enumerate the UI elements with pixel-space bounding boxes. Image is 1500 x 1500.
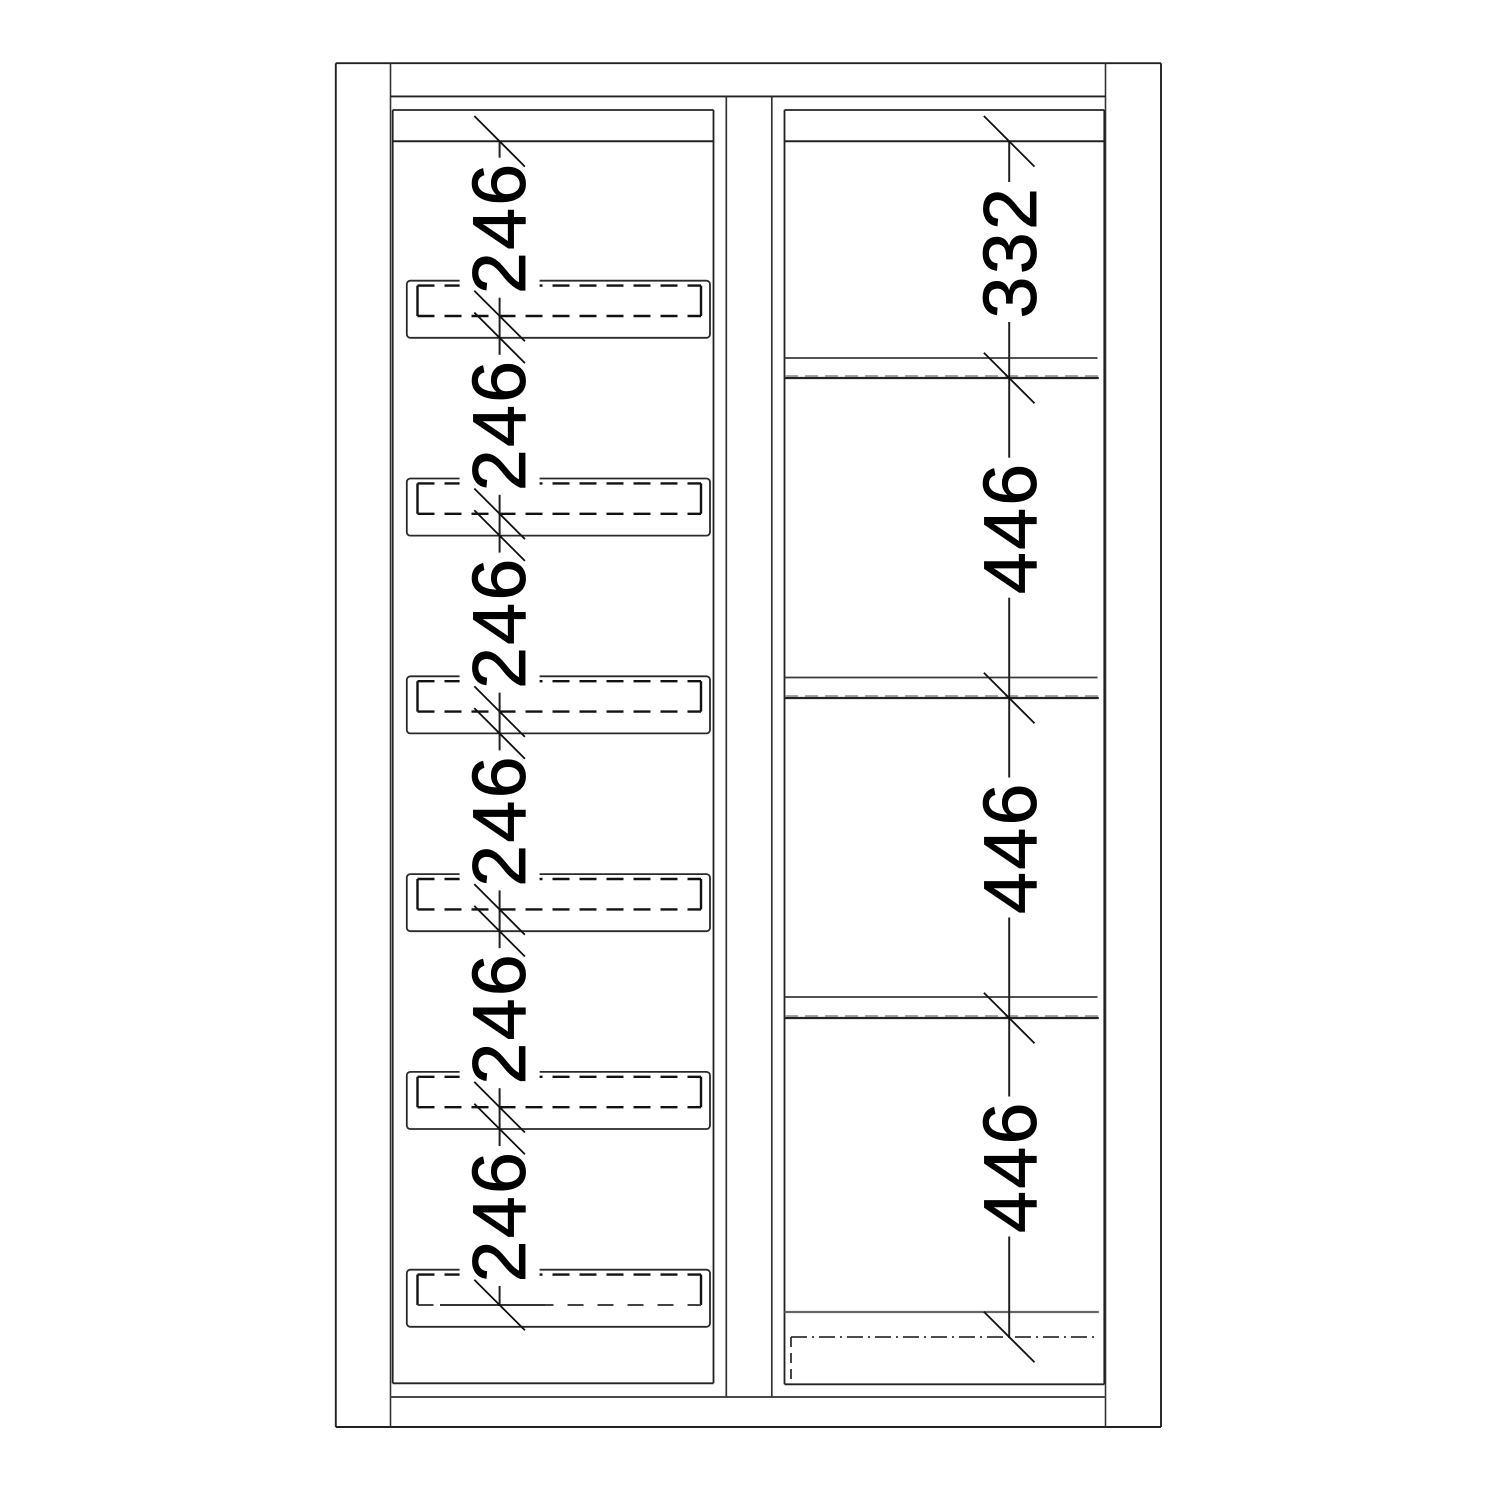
svg-text:246: 246 — [457, 952, 541, 1085]
svg-text:446: 446 — [968, 781, 1052, 914]
svg-text:446: 446 — [968, 461, 1052, 594]
svg-text:332: 332 — [968, 186, 1052, 319]
svg-text:446: 446 — [968, 1100, 1052, 1233]
svg-text:246: 246 — [457, 161, 541, 294]
svg-text:246: 246 — [457, 358, 541, 491]
svg-text:246: 246 — [457, 754, 541, 887]
svg-text:246: 246 — [457, 1150, 541, 1283]
svg-text:246: 246 — [457, 556, 541, 689]
